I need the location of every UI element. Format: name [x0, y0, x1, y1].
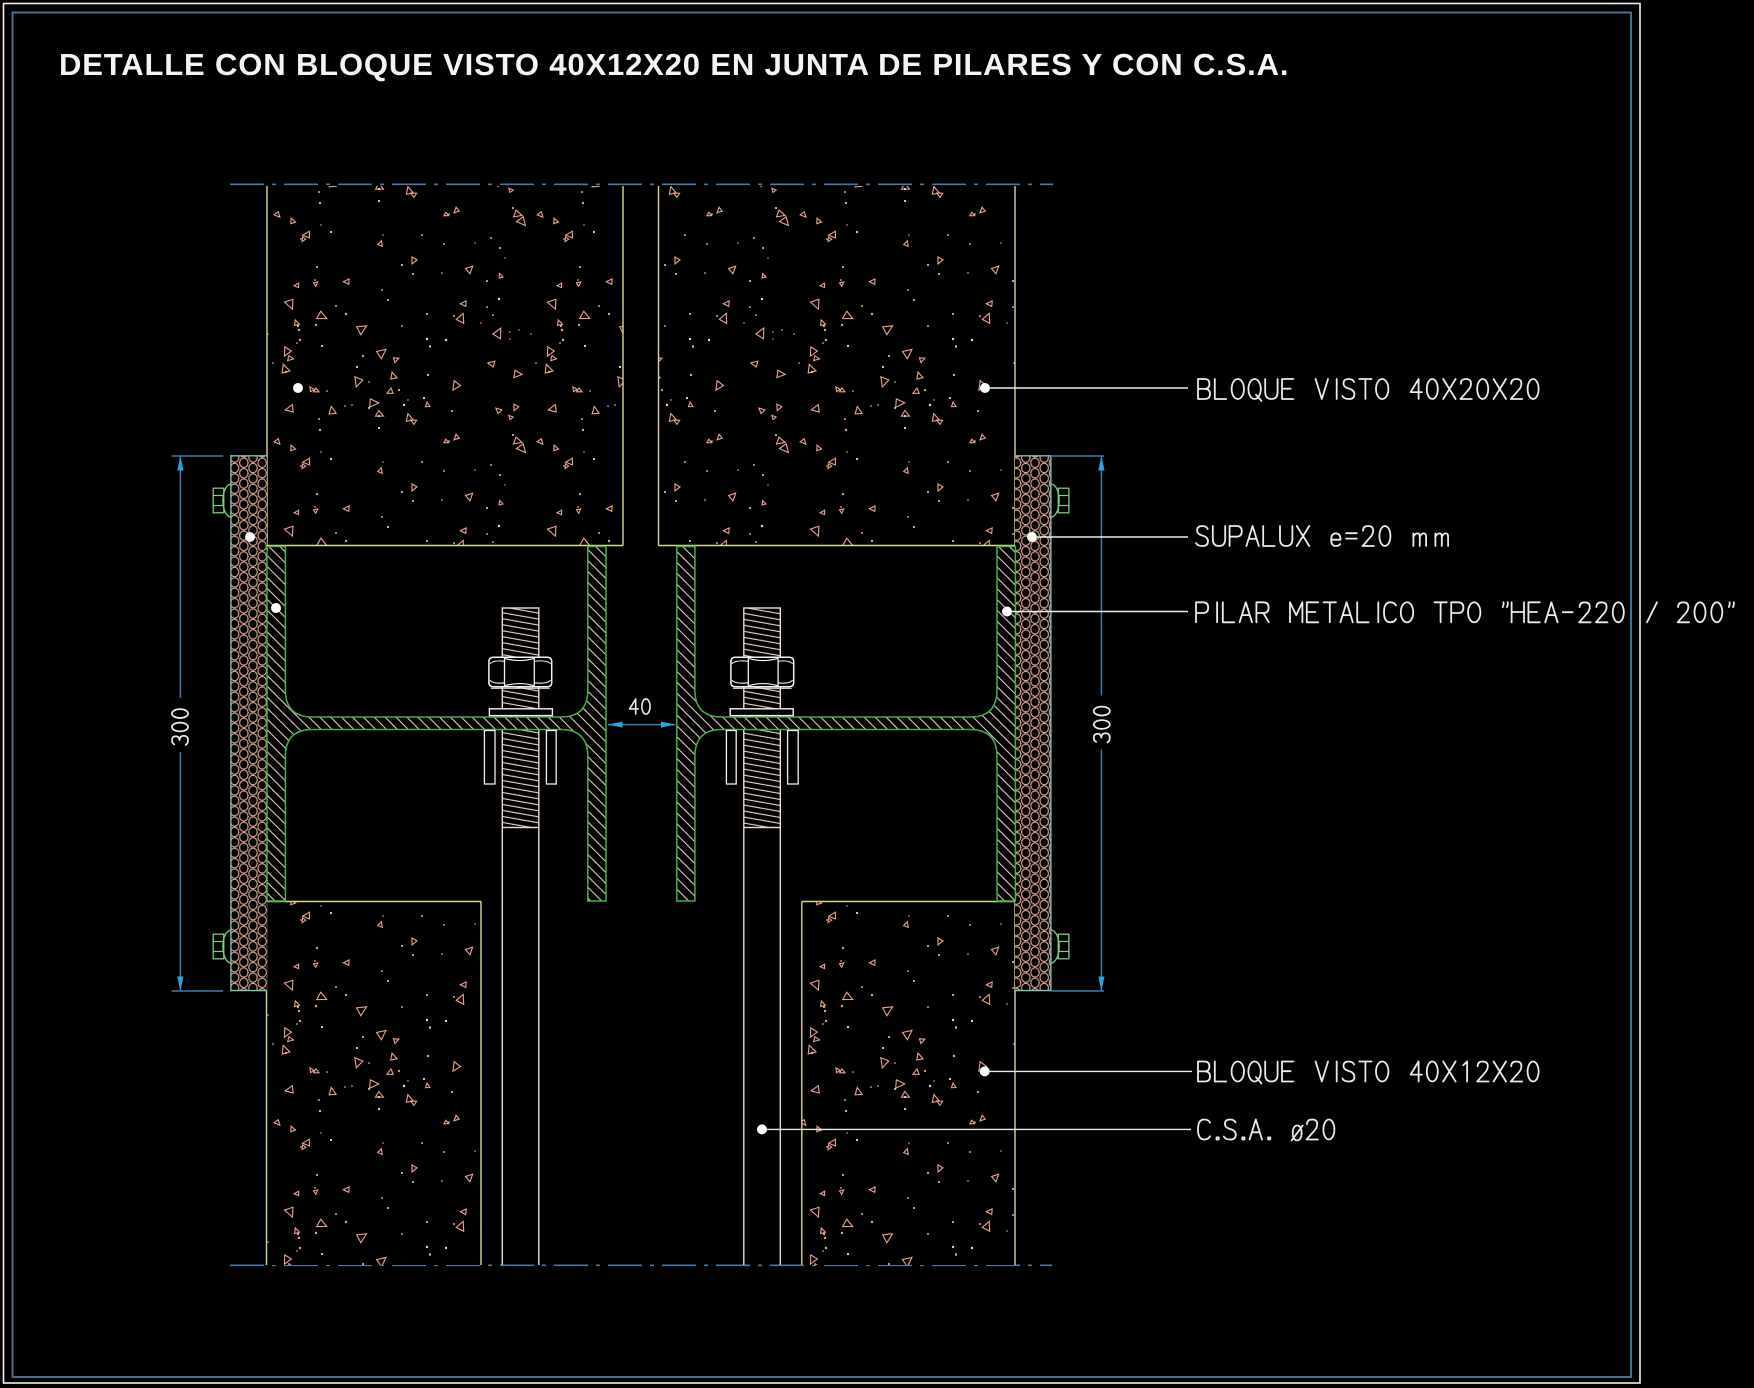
svg-text:DETALLE CON BLOQUE VISTO 40X12: DETALLE CON BLOQUE VISTO 40X12X20 EN JUN… — [59, 47, 1289, 82]
